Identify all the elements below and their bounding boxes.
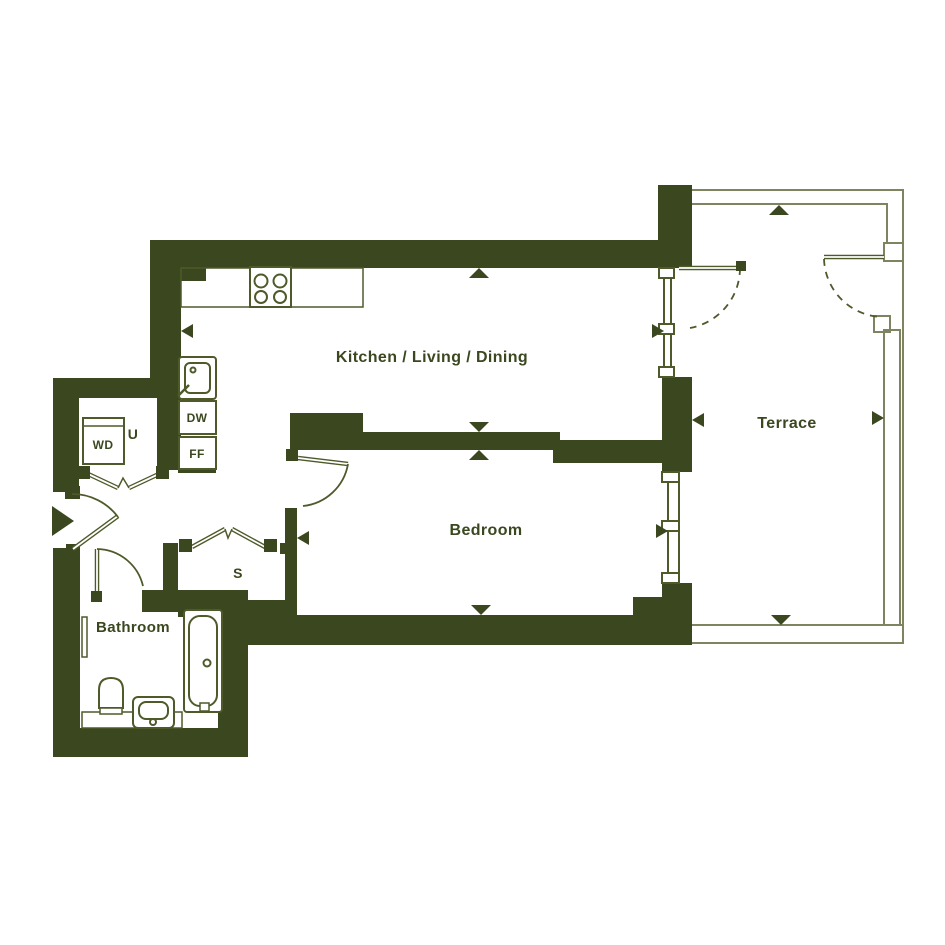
wall-segment — [658, 185, 692, 268]
hinge-block — [91, 591, 102, 602]
appliance-label-fridge-freezer: FF — [189, 447, 204, 461]
marker-top-wall — [469, 268, 489, 278]
room-label-store: S — [233, 565, 243, 581]
bathtub-step — [200, 703, 209, 711]
glazing-mullion — [659, 367, 674, 377]
hinge-block — [156, 466, 169, 479]
utility-bifold-leaf-core — [86, 473, 118, 488]
toilet — [99, 678, 123, 708]
utility-bifold-notch — [118, 478, 129, 488]
marker-living-bedroom-top — [469, 422, 489, 432]
living-terrace-glazing — [659, 268, 674, 377]
towel-rail — [82, 617, 87, 657]
terrace-railing-inner-top — [692, 204, 887, 243]
hinge-block — [77, 466, 90, 479]
room-label-bathroom: Bathroom — [96, 619, 170, 636]
walls — [53, 185, 692, 757]
wall-segment — [633, 597, 663, 617]
wall-segment — [150, 240, 658, 268]
room-label-terrace: Terrace — [757, 415, 816, 432]
entrance-arrow — [52, 506, 74, 536]
store-bifold-leaf-core — [232, 529, 265, 547]
wall-segment — [157, 360, 181, 470]
store-bifold-notch — [225, 529, 232, 538]
wall-segment — [290, 432, 560, 450]
wall-segment — [181, 268, 206, 281]
wall-segment — [285, 508, 297, 618]
hinge-block — [179, 539, 192, 552]
door-handle-block — [736, 261, 746, 271]
room-label-kitchen-living-dining: Kitchen / Living / Dining — [336, 349, 528, 366]
wall-segment — [662, 583, 692, 645]
store-bifold-leaf-core — [192, 529, 225, 547]
wall-segment — [150, 240, 181, 380]
marker-store-post — [297, 531, 309, 545]
floor-plan-svg: Kitchen / Living / Dining Terrace Bedroo… — [0, 0, 945, 945]
wall-segment — [662, 377, 692, 472]
marker-left-wall — [181, 324, 193, 338]
wall-segment — [53, 548, 80, 757]
bedroom-window — [662, 472, 679, 583]
marker-living-bedroom-bottom — [469, 450, 489, 460]
marker-terrace-bottom — [771, 615, 791, 625]
hinge-block — [264, 539, 277, 552]
wall-segment — [280, 543, 297, 554]
glazing-mullion — [662, 573, 679, 583]
floor-plan-page: Kitchen / Living / Dining Terrace Bedroo… — [0, 0, 945, 945]
wall-segment — [53, 378, 79, 492]
glazing-mullion — [662, 472, 679, 482]
glazing-mullion — [659, 268, 674, 278]
marker-terrace-top — [769, 205, 789, 215]
entrance-door-leaf-core — [73, 516, 118, 549]
bathroom-door-swing — [97, 549, 143, 586]
toilet-base — [100, 708, 122, 714]
bedroom-door-swing — [303, 464, 348, 506]
marker-terrace-wall — [692, 413, 704, 427]
wall-segment — [218, 615, 692, 645]
wall-segment — [65, 486, 80, 499]
terrace-door2-swing — [824, 259, 882, 317]
appliance-label-washer-dryer: WD — [93, 438, 114, 452]
terrace-window-return — [884, 243, 903, 261]
hinge-block — [286, 449, 298, 461]
room-label-utility: U — [128, 426, 139, 442]
room-label-bedroom: Bedroom — [449, 522, 522, 539]
fixtures — [82, 267, 363, 728]
marker-terrace-screen — [872, 411, 884, 425]
appliance-label-dishwasher: DW — [187, 411, 208, 425]
terrace-door-swing — [690, 268, 740, 328]
terrace-side-screen — [884, 330, 900, 625]
marker-bedroom-bottom — [471, 605, 491, 615]
